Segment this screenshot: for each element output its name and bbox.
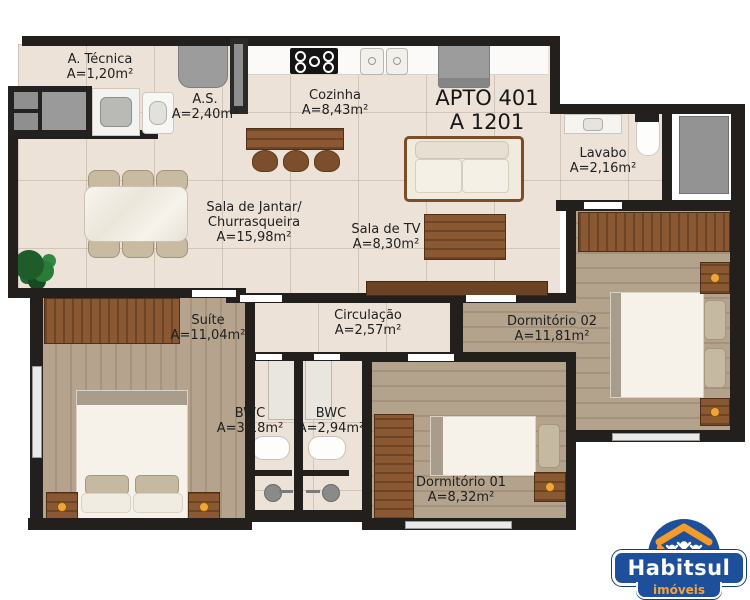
pillow-white bbox=[133, 493, 183, 513]
utility-cabinet bbox=[8, 86, 92, 136]
suite-bed bbox=[76, 390, 188, 520]
room-name: Dormitório 02 bbox=[507, 314, 597, 329]
dorm2-pillow bbox=[704, 300, 726, 340]
dorm1-bed bbox=[430, 416, 536, 476]
door-suite bbox=[192, 290, 236, 297]
label-cozinha: Cozinha A=8,43m² bbox=[302, 88, 369, 118]
wall-top-right bbox=[550, 36, 560, 114]
sofa-cushion bbox=[462, 159, 509, 193]
apto-number: APTO 401 bbox=[435, 86, 538, 110]
lavabo-sink bbox=[583, 118, 603, 131]
habitsul-logo: Habitsul imóveis bbox=[612, 516, 748, 598]
wall-lavabo-right bbox=[662, 108, 672, 203]
knob-icon bbox=[57, 502, 67, 512]
bar-stool bbox=[283, 150, 309, 172]
bed-fold bbox=[611, 293, 621, 397]
bwc2-toilet bbox=[308, 436, 346, 460]
window-dorm1 bbox=[405, 521, 512, 529]
lavabo-toilet bbox=[636, 116, 660, 156]
window-suite bbox=[32, 366, 42, 458]
pillow-white bbox=[81, 493, 131, 513]
burner-icon bbox=[309, 56, 320, 67]
wall-top bbox=[22, 36, 560, 46]
label-as: A.S. A=2,40m² bbox=[172, 92, 239, 122]
bar-stool bbox=[314, 150, 340, 172]
bwc1-toilet bbox=[252, 436, 290, 460]
logo-band: Habitsul bbox=[612, 550, 746, 586]
door-lavabo bbox=[584, 202, 622, 209]
room-name: A.S. bbox=[192, 92, 217, 107]
room-name: Dormitório 01 bbox=[416, 475, 506, 490]
lavabo-counter bbox=[564, 114, 622, 134]
room-area: A=2,57m² bbox=[335, 323, 402, 338]
bar-counter bbox=[246, 128, 344, 150]
unit-number: A 1201 bbox=[450, 110, 524, 134]
dorm2-nightstand bbox=[700, 398, 730, 426]
floor-plan: A. Técnica A=1,20m² A.S. A=2,40m² Cozinh… bbox=[0, 0, 750, 600]
bed-fold bbox=[77, 391, 187, 405]
dorm1-nightstand bbox=[534, 472, 566, 502]
room-area: A=11,81m² bbox=[515, 329, 590, 344]
label-dorm2: Dormitório 02 A=11,81m² bbox=[507, 314, 597, 344]
label-sala-tv: Sala de TV A=8,30m² bbox=[351, 222, 420, 252]
wall-right bbox=[730, 205, 745, 442]
burner-icon bbox=[323, 62, 334, 73]
wall-dorm2-left bbox=[566, 203, 576, 297]
room-area: A=15,98m² bbox=[217, 230, 292, 245]
bwc1-shower-wall bbox=[248, 470, 292, 476]
room-area: A=8,30m² bbox=[353, 237, 420, 252]
cabinet-panel bbox=[42, 92, 86, 130]
label-dorm1: Dormitório 01 A=8,32m² bbox=[416, 475, 506, 505]
dorm2-pillow bbox=[704, 348, 726, 388]
door-circulacao bbox=[240, 295, 282, 302]
wall-dorm1-top bbox=[362, 352, 576, 362]
room-name: Circulação bbox=[334, 308, 402, 323]
suite-wardrobe bbox=[44, 298, 180, 344]
knob-icon bbox=[199, 502, 209, 512]
label-a-tecnica: A. Técnica A=1,20m² bbox=[67, 52, 134, 82]
room-name: Sala de Jantar/ bbox=[206, 200, 301, 215]
label-lavabo: Lavabo A=2,16m² bbox=[570, 146, 637, 176]
sideboard bbox=[366, 281, 548, 296]
room-area: A=11,04m² bbox=[171, 328, 246, 343]
room-name: A. Técnica bbox=[68, 52, 133, 67]
tub-basin bbox=[100, 97, 132, 127]
bed-fold bbox=[431, 417, 443, 475]
wall-dorm1-right bbox=[566, 352, 576, 530]
label-bwc1: BWC A=3,18m² bbox=[217, 406, 284, 436]
burner-icon bbox=[295, 62, 306, 73]
drain bbox=[368, 57, 376, 65]
wall-bwc-bottom bbox=[245, 510, 370, 522]
room-area: A=2,40m² bbox=[172, 107, 239, 122]
label-suite: Suíte A=11,04m² bbox=[171, 313, 246, 343]
sofa-back bbox=[415, 141, 509, 159]
dining-table bbox=[84, 186, 188, 242]
room-name-2: Churrasqueira bbox=[208, 215, 300, 230]
cooktop bbox=[290, 48, 338, 74]
dryer-icon bbox=[14, 113, 38, 130]
wall-lavabo-top bbox=[556, 104, 745, 114]
kitchen-sink-2 bbox=[386, 48, 408, 75]
toilet-tank bbox=[635, 114, 659, 122]
brand-name: Habitsul bbox=[628, 556, 731, 580]
pillow bbox=[85, 475, 129, 495]
burner-icon bbox=[323, 51, 334, 62]
room-name: Suíte bbox=[191, 313, 224, 328]
label-sala-jantar: Sala de Jantar/ Churrasqueira A=15,98m² bbox=[206, 200, 301, 245]
bar-stool bbox=[252, 150, 278, 172]
room-area: A=2,94m² bbox=[298, 421, 365, 436]
bwc2-shower-arm bbox=[306, 490, 320, 493]
room-area: A=8,32m² bbox=[428, 490, 495, 505]
bwc1-shower-icon bbox=[264, 484, 282, 502]
refrigerator bbox=[438, 42, 490, 88]
dorm1-pillow bbox=[538, 424, 560, 468]
dorm2-nightstand bbox=[700, 262, 730, 294]
tv-stand bbox=[424, 214, 506, 260]
sink-bowl bbox=[149, 101, 167, 125]
bwc2-shower-icon bbox=[322, 484, 340, 502]
knob-icon bbox=[710, 273, 720, 283]
room-name: BWC bbox=[235, 406, 265, 421]
wall-circ-dorm2 bbox=[450, 297, 463, 355]
room-area: A=2,16m² bbox=[570, 161, 637, 176]
service-hall bbox=[679, 116, 729, 194]
room-area: A=3,18m² bbox=[217, 421, 284, 436]
water-heater bbox=[178, 44, 228, 88]
wall-dorm1-left bbox=[362, 352, 372, 530]
room-name: Lavabo bbox=[579, 146, 626, 161]
door-dorm2 bbox=[466, 295, 516, 302]
drain bbox=[393, 57, 401, 65]
door-dorm1 bbox=[408, 354, 454, 361]
dorm1-wardrobe bbox=[374, 414, 414, 520]
as-sink bbox=[142, 92, 174, 134]
burner-icon bbox=[295, 51, 306, 62]
label-bwc2: BWC A=2,94m² bbox=[298, 406, 365, 436]
room-area: A=8,43m² bbox=[302, 103, 369, 118]
logo-tagline-bar: imóveis bbox=[636, 582, 722, 599]
bwc2-shower-wall bbox=[303, 470, 349, 476]
knob-icon bbox=[710, 407, 720, 417]
wall-suite-bottom bbox=[28, 518, 252, 530]
sofa bbox=[404, 136, 524, 202]
dorm2-bed bbox=[610, 292, 704, 398]
washer-icon bbox=[14, 92, 38, 109]
plant-icon bbox=[14, 250, 44, 280]
wall-outer-right-top bbox=[731, 104, 745, 210]
knob-icon bbox=[545, 482, 555, 492]
door-bwc1 bbox=[256, 354, 282, 360]
label-circulacao: Circulação A=2,57m² bbox=[334, 308, 402, 338]
room-name: Sala de TV bbox=[351, 222, 420, 237]
dorm2-wardrobe bbox=[578, 212, 730, 252]
apartment-title: APTO 401 A 1201 bbox=[435, 86, 538, 134]
bwc1-shower-arm bbox=[279, 490, 293, 493]
door-bwc2 bbox=[314, 354, 340, 360]
laundry-tub bbox=[92, 88, 140, 136]
brand-tagline: imóveis bbox=[653, 583, 705, 597]
kitchen-sink bbox=[360, 48, 384, 75]
sofa-cushion bbox=[415, 159, 462, 193]
room-name: BWC bbox=[316, 406, 346, 421]
room-area: A=1,20m² bbox=[67, 67, 134, 82]
window-dorm2 bbox=[612, 433, 700, 441]
pillow bbox=[135, 475, 179, 495]
room-name: Cozinha bbox=[309, 88, 361, 103]
